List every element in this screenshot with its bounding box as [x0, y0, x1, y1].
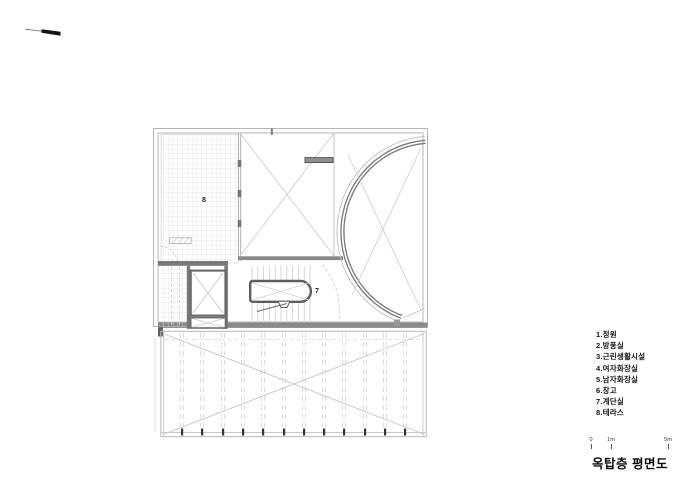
legend-item: 6.창고: [596, 385, 645, 396]
curved-roof-area: [337, 136, 426, 326]
window-mullion: [238, 160, 242, 167]
legend-item: 1.정원: [596, 329, 645, 340]
drawing-title: 옥탑층 평면도: [592, 453, 668, 472]
room-legend: 1.정원 2.방풍실 3.근린생활시설 4.여자화장실 5.남자화장실 6.창고…: [596, 329, 645, 419]
window-mullion: [238, 190, 242, 197]
door-swing-arc: [323, 265, 340, 320]
north-arrow-icon: [25, 29, 61, 36]
room-label-stair: 7: [315, 288, 319, 295]
legend-item: 4.여자화장실: [596, 363, 645, 374]
center-roof-area: [238, 133, 343, 260]
legend-item: 7.계단실: [596, 396, 645, 407]
floor-plan-drawing: [0, 0, 700, 495]
drawing-sheet: 8 7 1.정원 2.방풍실 3.근린생활시설 4.여자화장실 5.남자화장실 …: [0, 0, 700, 495]
legend-item: 5.남자화장실: [596, 374, 645, 385]
legend-item: 2.방풍실: [596, 340, 645, 351]
legend-item: 8.테라스: [596, 407, 645, 418]
window-mullion: [238, 220, 242, 227]
interior-wall: [238, 256, 343, 260]
room-label-terrace: 8: [202, 197, 206, 204]
legend-item: 3.근린생활시설: [596, 351, 645, 362]
stair-room: [250, 265, 339, 322]
pergola-roof: [155, 331, 426, 436]
rooftop-equipment: [305, 158, 333, 163]
